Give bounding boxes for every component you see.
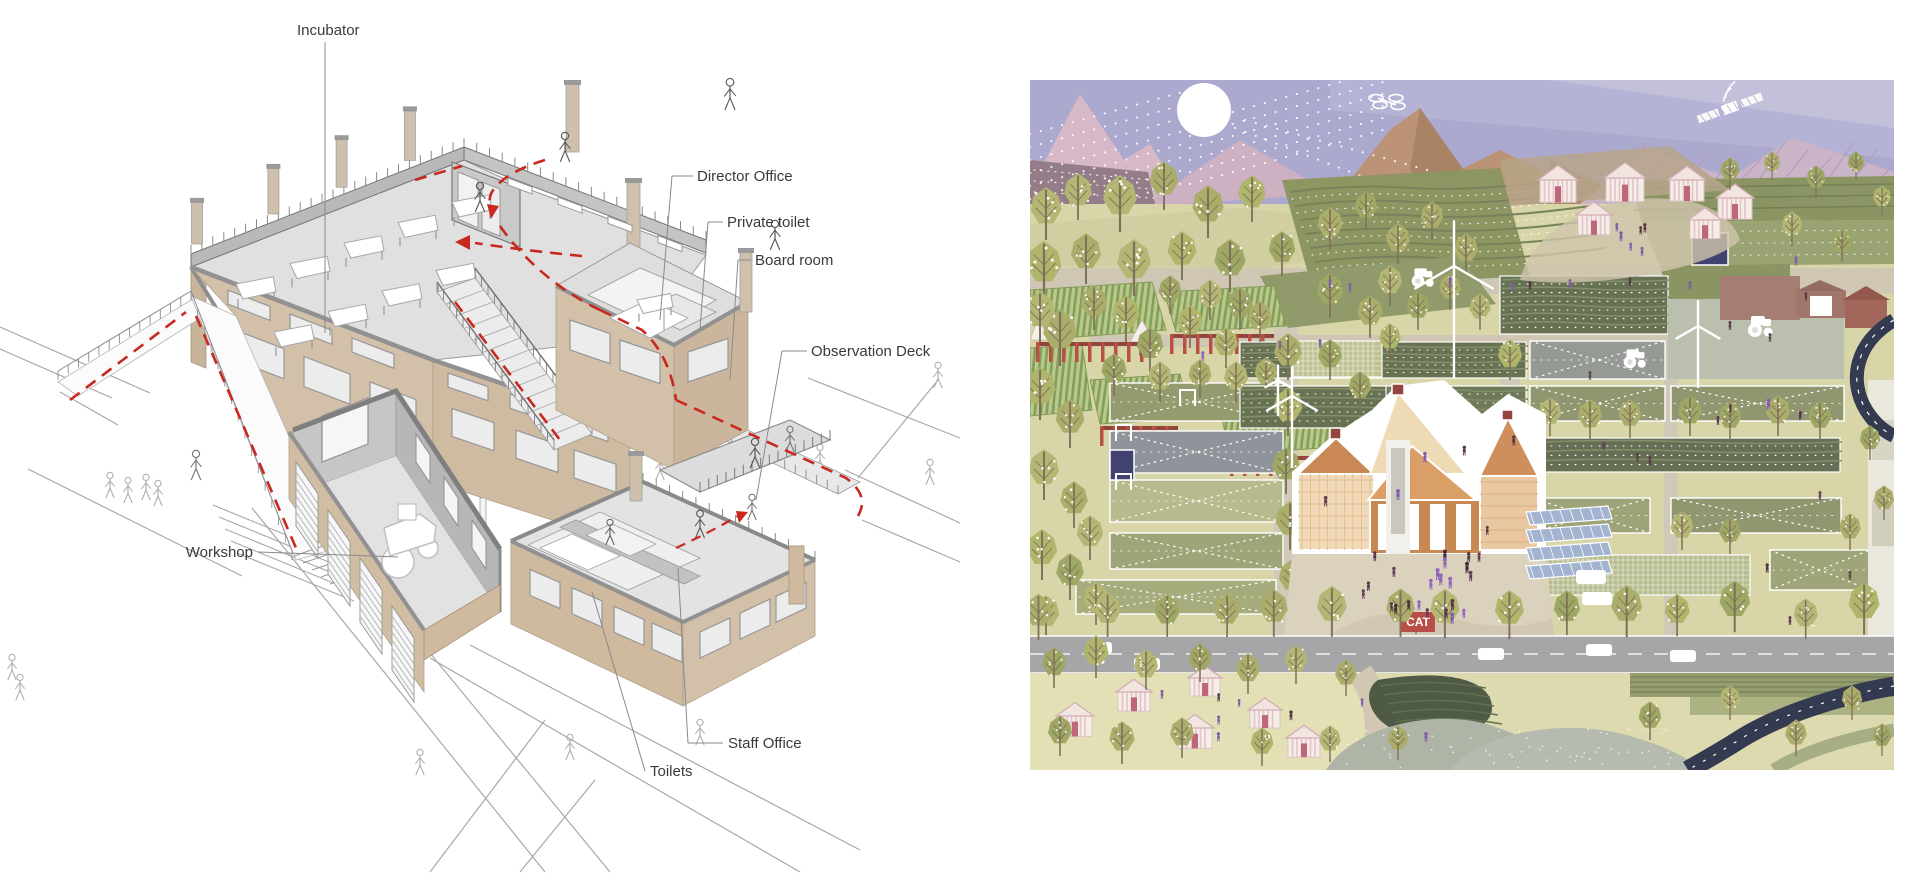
svg-text:Observation Deck: Observation Deck [811, 343, 931, 360]
svg-text:Private toilet: Private toilet [727, 214, 810, 231]
svg-text:Board room: Board room [755, 252, 833, 269]
svg-text:Staff Office: Staff Office [728, 735, 802, 752]
svg-text:Director Office: Director Office [697, 168, 793, 185]
svg-text:Workshop: Workshop [186, 544, 253, 561]
svg-text:Toilets: Toilets [650, 763, 693, 780]
svg-text:Incubator: Incubator [297, 22, 360, 39]
